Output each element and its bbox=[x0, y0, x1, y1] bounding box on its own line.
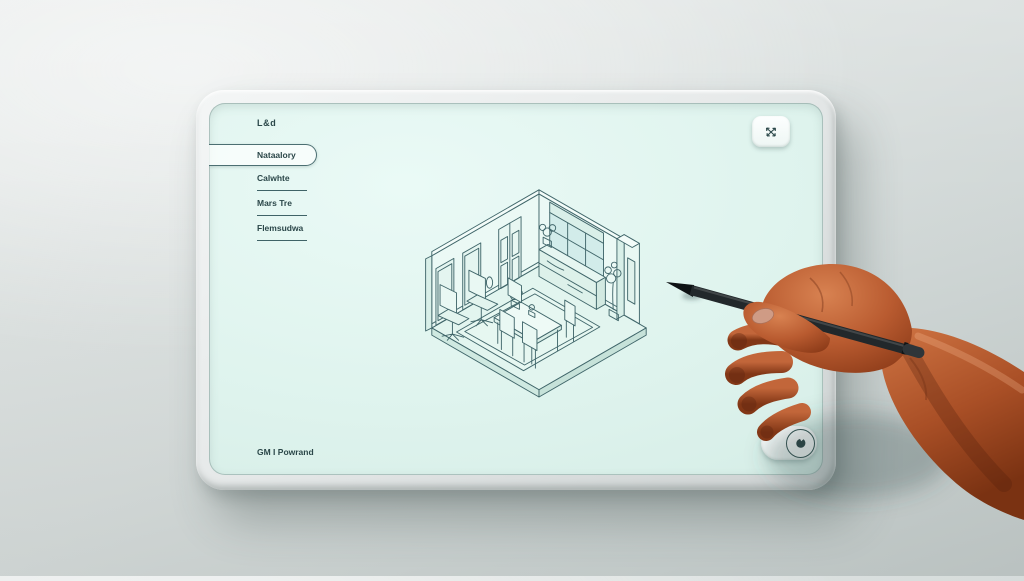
drawing-canvas[interactable] bbox=[384, 163, 694, 398]
footer-label: GM I Powrand bbox=[257, 447, 314, 457]
tablet-device: L&d Nataalory Calwhte Mars Tre Flemsudwa bbox=[196, 90, 836, 490]
ink-drop-icon bbox=[793, 436, 808, 451]
nav-item-3[interactable]: Mars Tre bbox=[257, 198, 307, 216]
nav-item-label: Calwhte bbox=[257, 173, 307, 183]
nav-item-selected[interactable]: Nataalory bbox=[209, 144, 317, 166]
nav-item-4[interactable]: Flemsudwa bbox=[257, 223, 307, 241]
app-logo: L&d bbox=[257, 118, 276, 128]
sidebar-nav: Nataalory Calwhte Mars Tre Flemsudwa bbox=[209, 144, 317, 241]
expand-button[interactable] bbox=[752, 116, 790, 147]
nav-item-2[interactable]: Calwhte bbox=[257, 173, 307, 191]
nav-item-label: Nataalory bbox=[257, 150, 296, 160]
nav-item-label: Flemsudwa bbox=[257, 223, 307, 233]
expand-arrows-icon bbox=[763, 125, 779, 139]
pen-tool-button[interactable] bbox=[761, 426, 817, 460]
nav-item-label: Mars Tre bbox=[257, 198, 307, 208]
tablet-screen: L&d Nataalory Calwhte Mars Tre Flemsudwa bbox=[209, 103, 823, 475]
room-sketch bbox=[384, 163, 694, 398]
pen-tool-ring bbox=[786, 429, 815, 458]
forearm bbox=[881, 328, 1024, 520]
